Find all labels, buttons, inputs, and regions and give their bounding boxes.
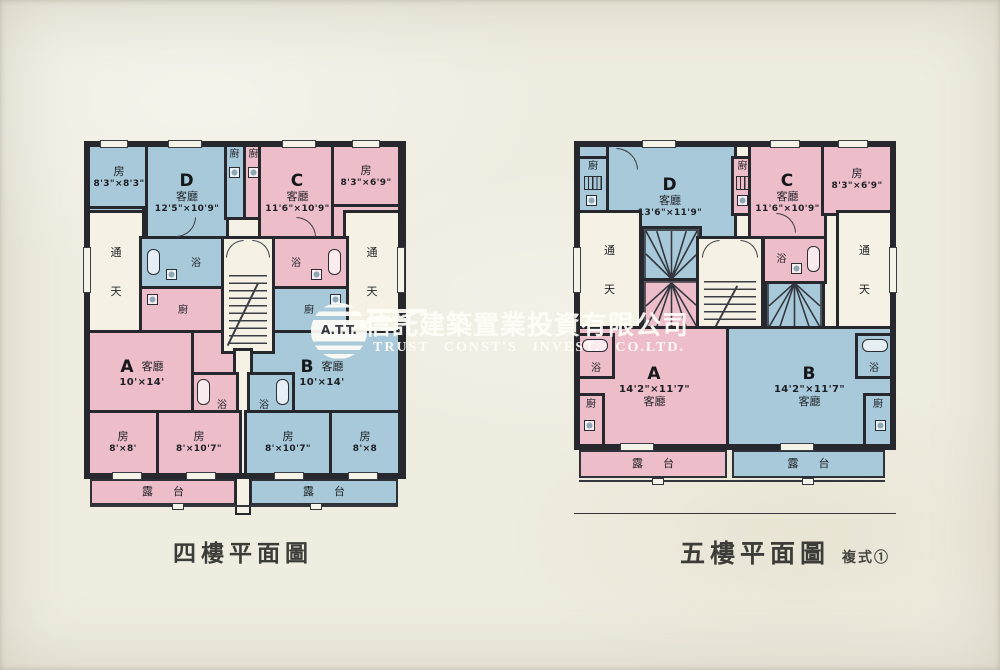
caption-5f-duplex-note: 複式①: [842, 549, 890, 565]
window: [620, 443, 654, 451]
bathtub-icon: [197, 379, 210, 405]
building-outline-4f: 房 8'3"×8'3" D 客廳 12'5"×10'9" 廚 廚 C 客廳 11…: [84, 141, 406, 479]
window: [168, 140, 202, 148]
plot-boundary-line: [574, 513, 896, 514]
kitchen-label: 廚: [230, 150, 240, 160]
sink-icon: [791, 263, 802, 274]
stair-steps: [229, 275, 267, 347]
unit-letter: D: [662, 177, 677, 194]
window: [186, 472, 216, 480]
window: [100, 140, 128, 148]
room-dims: 13'6"×11'9": [638, 209, 702, 218]
balcony-post: [172, 503, 184, 510]
living-label: 客廳: [799, 397, 821, 408]
p4-bedroom-b2: 房 8'×8: [332, 413, 398, 473]
unit-letter: C: [291, 173, 304, 190]
winder-stair-icon: [644, 281, 699, 329]
p4-bath-b: 浴: [250, 375, 292, 413]
kitchen-label: 廚: [304, 306, 314, 316]
room-dims: 8'3"×6'9": [831, 182, 882, 191]
balcony-label: 露台: [768, 459, 850, 470]
living-label: 客廳: [644, 397, 666, 408]
window: [889, 247, 897, 293]
p4-kitchen-a: 廚: [142, 289, 224, 333]
p5-bath-a: 浴: [580, 336, 612, 376]
winder-stair-icon: [767, 281, 822, 329]
caption-5f-title: 五樓平面圖: [680, 540, 830, 568]
living-label: 客廳: [777, 192, 799, 203]
window: [352, 140, 380, 148]
p4-bedroom-a2: 房 8'×10'7": [159, 413, 239, 473]
balcony-label: 露台: [283, 487, 365, 498]
sink-icon: [248, 167, 259, 178]
p5-balcony-b: 露台: [732, 450, 885, 478]
room-fill: [580, 147, 606, 159]
kitchen-label: 廚: [738, 162, 748, 172]
bedroom-label: 房: [118, 432, 129, 443]
room-dims: 14'2"×11'7": [774, 385, 845, 395]
bedroom-label: 房: [114, 167, 125, 178]
sink-icon: [737, 195, 748, 206]
balcony-post: [652, 478, 664, 485]
lightwell-label: 通: [859, 246, 870, 257]
window: [573, 247, 581, 293]
floor-plan-5f: D 客廳 13'6"×11'9" 廚 廚 C 客廳 11'6"×10'9": [574, 141, 896, 521]
p5-bath-c: 浴: [765, 239, 824, 281]
lightwell-label: 通: [367, 248, 378, 259]
unit-letter: A: [120, 359, 134, 376]
p4-bedroom-b1: 房 8'×10'7": [247, 413, 329, 473]
living-label: 客廳: [659, 196, 681, 207]
p5-kitchen-c: 廚: [734, 159, 751, 213]
window: [83, 247, 91, 293]
room-dims: 8'×8': [109, 445, 137, 454]
p5-winder-stair-d: [644, 229, 699, 281]
window: [780, 443, 814, 451]
window: [397, 247, 405, 293]
p4-kitchen-b: 廚: [272, 289, 346, 333]
shelf-icon: [584, 176, 602, 190]
room-dims: 8'3"×6'9": [340, 179, 391, 188]
floor-plan-4f: 房 8'3"×8'3" D 客廳 12'5"×10'9" 廚 廚 C 客廳 11…: [84, 141, 406, 517]
p4-kitchen-d: 廚: [227, 147, 243, 217]
window: [348, 472, 378, 480]
bathtub-icon: [582, 339, 608, 352]
bedroom-label: 房: [852, 169, 863, 180]
p4-bedroom-top-right: 房 8'3"×6'9": [334, 147, 398, 207]
window: [642, 140, 676, 148]
balcony-divider: [237, 479, 249, 513]
kitchen-label: 廚: [586, 400, 596, 410]
p5-bath-b: 浴: [858, 336, 890, 376]
window: [838, 140, 868, 148]
bath-label: 浴: [291, 259, 301, 269]
room-dims: 8'3"×8'3": [93, 180, 144, 189]
room-dims: 11'6"×10'9": [755, 205, 819, 214]
p4-balcony-b: 露台: [250, 479, 398, 505]
sink-icon: [311, 269, 322, 280]
bath-label: 浴: [591, 364, 601, 374]
unit-letter: A: [647, 366, 661, 383]
bath-label: 浴: [217, 401, 227, 411]
sink-icon: [166, 269, 177, 280]
p4-bath-d: 浴: [142, 239, 224, 289]
bathtub-icon: [276, 379, 289, 405]
p4-bath-a: 浴: [194, 375, 236, 413]
bath-label: 浴: [259, 401, 269, 411]
balcony-rail: [579, 480, 885, 482]
bathtub-icon: [328, 249, 341, 275]
p4-lightwell-left: 通 天: [90, 213, 142, 333]
bathtub-icon: [807, 246, 820, 272]
bathtub-icon: [862, 339, 888, 352]
bedroom-label: 房: [361, 166, 372, 177]
building-outline-5f: D 客廳 13'6"×11'9" 廚 廚 C 客廳 11'6"×10'9": [574, 141, 896, 450]
sink-icon: [584, 420, 595, 431]
lightwell-label: 通: [111, 248, 122, 259]
sink-icon: [147, 294, 158, 305]
living-label: 客廳: [176, 192, 198, 203]
p5-lightwell-right: 通 天: [839, 213, 890, 329]
lightwell-label: 通: [604, 246, 615, 257]
balcony-label: 露台: [122, 487, 204, 498]
p5-lightwell-left: 通 天: [580, 213, 639, 329]
p4-kitchen-c: 廚: [246, 147, 262, 217]
bedroom-label: 房: [194, 432, 205, 443]
room-dims: 11'6"×10'9": [265, 205, 329, 214]
p5-winder-stair-b: [767, 281, 822, 329]
bathtub-icon: [147, 249, 160, 275]
p5-kitchen-a: 廚: [580, 396, 602, 444]
window: [282, 140, 316, 148]
bath-label: 浴: [777, 255, 787, 265]
p4-balcony-a: 露台: [90, 479, 236, 505]
winder-stair-icon: [644, 229, 699, 281]
unit-letter: B: [803, 366, 817, 383]
sink-icon: [229, 167, 240, 178]
living-label: 客廳: [321, 362, 343, 373]
lightwell-label: 天: [859, 285, 870, 296]
unit-letter: B: [301, 359, 315, 376]
kitchen-label: 廚: [178, 306, 188, 316]
lightwell-label: 天: [604, 285, 615, 296]
kitchen-label: 廚: [249, 150, 259, 160]
scanned-floor-plan-page: 房 8'3"×8'3" D 客廳 12'5"×10'9" 廚 廚 C 客廳 11…: [0, 0, 1000, 670]
room-dims: 10'×14': [299, 378, 344, 388]
balcony-post: [310, 503, 322, 510]
living-label: 客廳: [287, 192, 309, 203]
p5-bedroom-top-right: 房 8'3"×6'9": [824, 147, 890, 213]
balcony-rail: [90, 505, 398, 507]
lightwell-label: 天: [111, 287, 122, 298]
p5-kitchen-d: 廚: [580, 159, 606, 213]
p5-balcony-a: 露台: [579, 450, 727, 478]
p4-lightwell-right: 通 天: [346, 213, 398, 333]
p4-bath-c: 浴: [272, 239, 346, 289]
room-dims: 14'2"×11'7": [619, 385, 690, 395]
balcony-label: 露台: [612, 459, 694, 470]
room-dims: 12'5"×10'9": [155, 205, 219, 214]
sink-icon: [586, 195, 597, 206]
shelf-icon: [736, 176, 750, 190]
room-dims: 8'×8: [353, 445, 377, 454]
bath-label: 浴: [869, 364, 879, 374]
p4-bedroom-top-left: 房 8'3"×8'3": [90, 147, 148, 209]
balcony-post: [802, 478, 814, 485]
living-label: 客廳: [142, 362, 164, 373]
window: [274, 472, 304, 480]
bedroom-label: 房: [360, 432, 371, 443]
room-dims: 8'×10'7": [176, 445, 222, 454]
p5-kitchen-b: 廚: [866, 396, 890, 444]
stair-steps: [704, 281, 756, 333]
kitchen-label: 廚: [873, 400, 883, 410]
bath-label: 浴: [191, 259, 201, 269]
window: [770, 140, 800, 148]
kitchen-label: 廚: [588, 162, 598, 172]
unit-letter: D: [179, 173, 194, 190]
bedroom-label: 房: [283, 432, 294, 443]
p5-winder-stair-a: [644, 281, 699, 329]
window: [112, 472, 142, 480]
p4-unit-a-living: A 客廳 10'×14': [90, 333, 194, 413]
room-dims: 10'×14': [119, 378, 164, 388]
sink-icon: [330, 294, 341, 305]
room-dims: 8'×10'7": [265, 445, 311, 454]
sink-icon: [875, 420, 886, 431]
caption-5f: 五樓平面圖複式①: [680, 534, 890, 570]
lightwell-label: 天: [367, 287, 378, 298]
unit-letter: C: [781, 173, 794, 190]
caption-4f: 四樓平面圖: [173, 534, 313, 568]
p4-bedroom-a1: 房 8'×8': [90, 413, 156, 473]
